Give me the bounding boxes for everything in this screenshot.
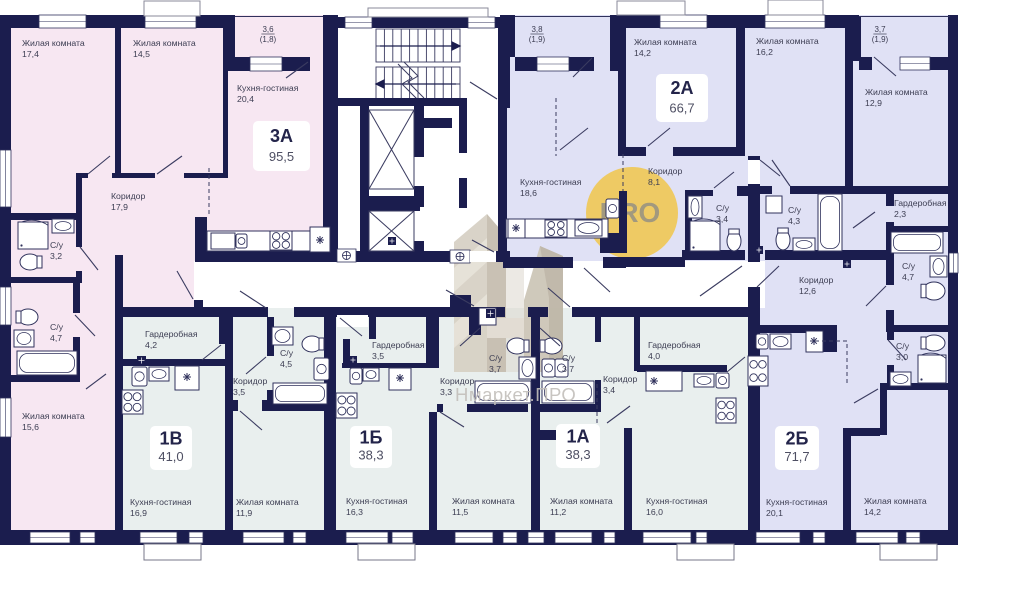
svg-text:С/у: С/у [50,240,64,250]
svg-text:Нмаркет.ПРО: Нмаркет.ПРО [455,384,576,405]
svg-text:Кухня-гостиная: Кухня-гостиная [237,83,299,93]
svg-text:Кухня-гостиная: Кухня-гостиная [646,496,708,506]
svg-text:4,7: 4,7 [50,333,62,343]
svg-text:4,0: 4,0 [648,351,660,361]
svg-text:4,3: 4,3 [788,216,800,226]
svg-text:Жилая комната: Жилая комната [634,37,697,47]
svg-text:С/у: С/у [280,348,294,358]
svg-text:Коридор: Коридор [799,275,833,285]
svg-text:С/у: С/у [896,341,910,351]
svg-text:12,9: 12,9 [865,98,882,108]
svg-text:41,0: 41,0 [158,449,183,464]
svg-text:Жилая комната: Жилая комната [756,36,819,46]
svg-text:Жилая комната: Жилая комната [236,497,299,507]
svg-text:4,5: 4,5 [280,359,292,369]
svg-text:4,7: 4,7 [902,272,914,282]
svg-text:Кухня-гостиная: Кухня-гостиная [346,496,408,506]
svg-text:С/у: С/у [562,353,576,363]
svg-text:(1,8): (1,8) [260,35,277,44]
svg-text:3,6: 3,6 [262,25,274,34]
svg-text:14,5: 14,5 [133,49,150,59]
svg-text:3,5: 3,5 [233,387,245,397]
svg-text:Коридор: Коридор [440,376,474,386]
svg-text:Коридор: Коридор [111,191,145,201]
svg-text:2,3: 2,3 [894,209,906,219]
svg-text:38,3: 38,3 [565,447,590,462]
svg-text:Гардеробная: Гардеробная [648,340,701,350]
svg-text:17,9: 17,9 [111,202,128,212]
svg-text:С/у: С/у [788,205,802,215]
svg-text:3,2: 3,2 [50,251,62,261]
svg-text:Коридор: Коридор [603,374,637,384]
svg-text:14,2: 14,2 [634,48,651,58]
svg-text:3,0: 3,0 [896,352,908,362]
svg-text:66,7: 66,7 [669,100,694,115]
svg-text:20,1: 20,1 [766,508,783,518]
svg-text:3,8: 3,8 [531,25,543,34]
svg-text:2Б: 2Б [786,428,809,448]
svg-text:3,5: 3,5 [372,351,384,361]
svg-text:14,2: 14,2 [864,507,881,517]
svg-text:(1,9): (1,9) [872,35,889,44]
svg-text:Гардеробная: Гардеробная [372,340,425,350]
svg-text:1А: 1А [566,426,589,446]
svg-text:16,0: 16,0 [646,507,663,517]
svg-text:Коридор: Коридор [648,166,682,176]
svg-text:15,6: 15,6 [22,422,39,432]
svg-text:Кухня-гостиная: Кухня-гостиная [130,497,192,507]
svg-text:16,9: 16,9 [130,508,147,518]
svg-text:Жилая комната: Жилая комната [550,496,613,506]
svg-text:38,3: 38,3 [358,448,383,463]
svg-text:Гардеробная: Гардеробная [894,198,947,208]
svg-text:С/у: С/у [716,203,730,213]
svg-text:3,4: 3,4 [716,214,728,224]
svg-text:3,4: 3,4 [603,385,615,395]
svg-text:1Б: 1Б [360,428,383,448]
svg-text:1В: 1В [159,428,182,448]
svg-text:11,2: 11,2 [550,507,566,517]
svg-text:Жилая комната: Жилая комната [133,38,196,48]
svg-text:Жилая комната: Жилая комната [22,38,85,48]
svg-text:16,2: 16,2 [756,47,773,57]
svg-text:4,2: 4,2 [145,340,157,350]
svg-text:11,9: 11,9 [236,508,252,518]
svg-text:Кухня-гостиная: Кухня-гостиная [520,177,582,187]
svg-text:8,1: 8,1 [648,177,660,187]
svg-text:Жилая комната: Жилая комната [864,496,927,506]
svg-text:12,6: 12,6 [799,286,816,296]
svg-text:Жилая комната: Жилая комната [865,87,928,97]
svg-text:3А: 3А [270,126,293,146]
svg-text:Гардеробная: Гардеробная [145,329,198,339]
svg-text:С/у: С/у [489,353,503,363]
svg-text:11,5: 11,5 [452,507,468,517]
svg-text:18,6: 18,6 [520,188,537,198]
svg-text:Кухня-гостиная: Кухня-гостиная [766,497,828,507]
svg-text:С/у: С/у [50,322,64,332]
svg-text:17,4: 17,4 [22,49,39,59]
svg-text:Жилая комната: Жилая комната [22,411,85,421]
svg-text:С/у: С/у [902,261,916,271]
svg-text:71,7: 71,7 [784,449,809,464]
svg-text:3,7: 3,7 [489,364,501,374]
svg-text:3,7: 3,7 [562,364,574,374]
svg-text:Коридор: Коридор [233,376,267,386]
svg-text:Жилая комната: Жилая комната [452,496,515,506]
svg-text:95,5: 95,5 [269,149,294,164]
svg-text:(1,9): (1,9) [529,35,546,44]
svg-text:3,7: 3,7 [874,25,886,34]
svg-text:16,3: 16,3 [346,507,363,517]
svg-text:3,3: 3,3 [440,387,452,397]
svg-text:20,4: 20,4 [237,94,254,104]
svg-text:2А: 2А [670,78,693,98]
